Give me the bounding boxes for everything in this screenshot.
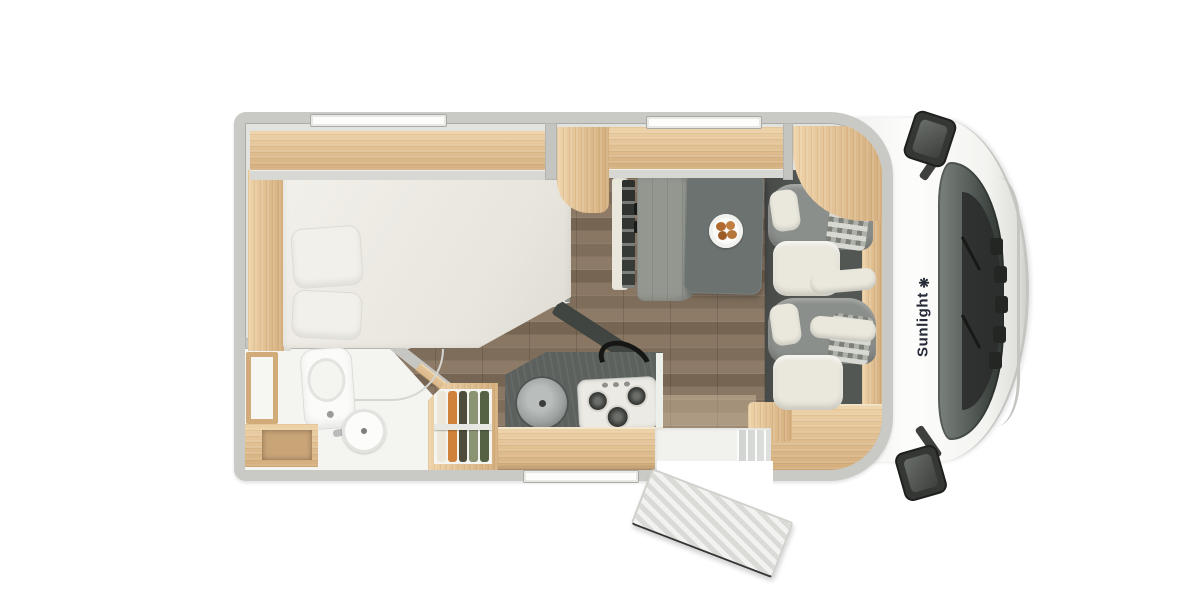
bed-foot-wardrobe: [557, 127, 609, 213]
seat-cushion: [773, 355, 842, 410]
food-item: [726, 221, 735, 230]
habitation-area: [234, 112, 893, 481]
bathroom-vanity: [245, 424, 318, 467]
bathroom-sink: [342, 409, 386, 453]
mirror-glass: [903, 453, 939, 493]
floorplan-canvas: Sunlight ❋: [0, 0, 1200, 600]
gas-hob: [577, 376, 660, 432]
cabinet-divider: [545, 123, 557, 180]
rear-wall-shelf: [248, 170, 284, 351]
brand-name: Sunlight: [915, 292, 932, 357]
sink-drain: [539, 400, 546, 407]
bumper-chrome-trim: [997, 176, 1020, 426]
wardrobe-rail: [434, 424, 492, 430]
burner: [627, 387, 646, 406]
hob-knob: [613, 382, 619, 387]
brand-logo: Sunlight ❋: [908, 243, 938, 357]
wardrobe: [428, 383, 498, 470]
sink-drain: [361, 428, 367, 434]
sun-icon: ❋: [916, 274, 931, 290]
mirror-glass: [911, 119, 948, 160]
food-item: [727, 230, 737, 239]
kitchen-drawer-front: [495, 427, 663, 470]
overhead-cabinet-bed: [250, 131, 546, 171]
bathroom-mirror-panel: [246, 352, 278, 424]
burner: [588, 392, 607, 411]
pillow: [291, 289, 363, 341]
food-item: [718, 231, 727, 240]
cabinet-divider: [783, 123, 793, 180]
toilet-lid: [306, 357, 347, 404]
pillow: [290, 225, 364, 290]
passenger-seat: [768, 298, 876, 412]
overhead-cabinet-dinette: [609, 127, 783, 170]
window-kitchen: [523, 470, 639, 483]
entry-floor-highlight: [658, 395, 756, 429]
tv-screen: [622, 180, 635, 288]
vanity-inset: [262, 430, 312, 460]
food-item: [716, 222, 726, 231]
hob-knob: [624, 381, 630, 386]
window-bedroom: [310, 114, 447, 127]
burner: [607, 407, 628, 428]
kitchen-sink: [515, 376, 569, 430]
cabinet-front-lip: [609, 169, 783, 178]
cabinet-front-lip: [250, 170, 549, 180]
window-dinette: [646, 116, 762, 129]
plate-with-food: [709, 214, 743, 248]
wardrobe-interior: [434, 389, 492, 464]
counter-end-panel: [656, 353, 663, 428]
flush-button: [327, 411, 334, 418]
hob-knob: [602, 383, 608, 388]
